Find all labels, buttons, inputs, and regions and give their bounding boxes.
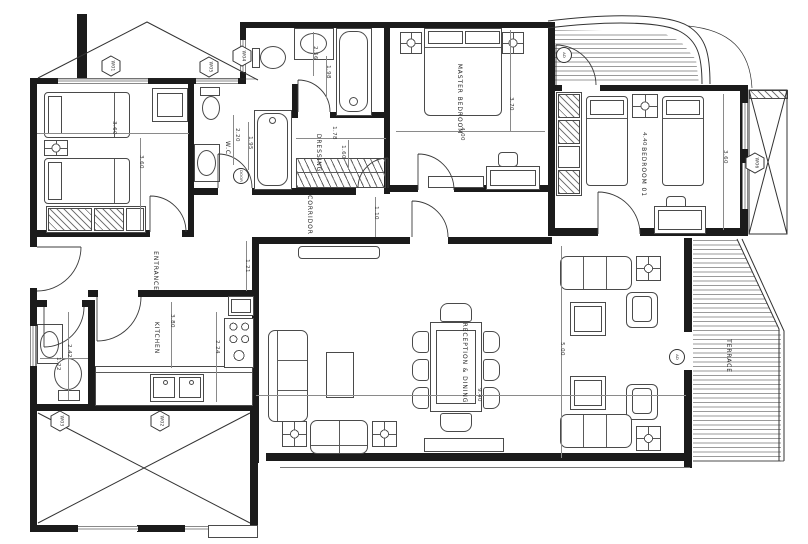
- door-arc: [418, 154, 454, 190]
- dimension-label: 2.20: [233, 128, 239, 142]
- dimension-label: 9.40: [475, 388, 481, 402]
- room-label: TERRACE: [725, 339, 731, 373]
- circle-tag: AD: [669, 349, 685, 365]
- door-arc: [44, 307, 84, 347]
- circle-tag: AD: [556, 47, 572, 63]
- circle-tag-label: AD: [562, 52, 566, 58]
- window-tag-hexagon: W05: [199, 56, 219, 78]
- room-label: DRESSING: [315, 134, 321, 172]
- dimension-label: 1.98: [324, 65, 330, 79]
- room-label: MASTER BEDROOM: [456, 64, 462, 135]
- circle-tag: DOOR: [233, 168, 249, 184]
- dimension-label: 1.78: [330, 126, 336, 140]
- dimension-label: 3.60: [110, 121, 116, 135]
- plan-linework: [0, 0, 808, 544]
- window-tag-hexagon: W06: [745, 152, 765, 174]
- window-tag-hexagon: W02: [150, 410, 170, 432]
- terrace-railing: [737, 239, 784, 461]
- window-tag-hexagon: W04: [232, 45, 252, 67]
- dimension-label: 2.24: [213, 340, 219, 354]
- door-arc: [97, 297, 141, 341]
- window-tag-label: W03: [58, 416, 63, 427]
- room-label: KITCHEN: [153, 322, 159, 354]
- dimension-label: 1.22: [54, 357, 60, 371]
- door-arc: [37, 247, 81, 291]
- window-tag-hexagon: W03: [50, 410, 70, 432]
- dimension-line: [216, 312, 217, 402]
- roof-sweep-curve: [688, 26, 752, 88]
- door-arc: [598, 192, 640, 234]
- dimension-line: [510, 30, 511, 131]
- dimension-label: 1.10: [372, 206, 378, 220]
- dimension-label: 1.21: [243, 259, 249, 273]
- room-label: BEDROOM 01: [640, 147, 646, 197]
- dimension-line: [348, 140, 349, 170]
- dimension-label: 1.60: [339, 145, 345, 159]
- dimension-label: 3.60: [721, 150, 727, 164]
- window-tag-label: W02: [158, 416, 163, 427]
- window-tag-label: W04: [240, 51, 245, 62]
- dimension-label: 3.70: [507, 97, 513, 111]
- door-arc: [358, 158, 388, 188]
- dimension-label: 2.56: [311, 46, 317, 60]
- window-tag-hexagon: W01: [101, 55, 121, 77]
- dimension-label: 1.95: [246, 136, 252, 150]
- circle-tag-label: AD: [675, 354, 679, 360]
- dimension-label: 4.00: [458, 127, 464, 141]
- floor-plan-canvas: ENTRANCEKITCHENCORRIDORW.CDRESSINGMASTER…: [0, 0, 808, 544]
- dimension-label: 3.60: [137, 155, 143, 169]
- window-tag-label: W01: [109, 61, 114, 72]
- door-arc: [412, 201, 448, 237]
- dimension-label: 2.42: [65, 344, 71, 358]
- room-label: CORRIDOR: [306, 195, 312, 235]
- window-tag-label: W06: [753, 158, 758, 169]
- door-arc: [150, 196, 186, 232]
- dimension-line: [140, 138, 141, 230]
- dimension-line: [171, 302, 172, 368]
- dimension-label: 5.00: [558, 342, 564, 356]
- canopy-outline: [38, 22, 258, 80]
- room-label: RECEPTION & DINING: [461, 323, 467, 404]
- dimension-line: [40, 358, 88, 359]
- room-label: ENTRANCE: [152, 251, 158, 291]
- dimension-label: 4.40: [640, 132, 646, 146]
- dimension-line: [256, 395, 686, 396]
- paving-edge-line: [280, 467, 690, 468]
- window-tag-label: W05: [207, 62, 212, 73]
- dimension-line: [296, 138, 386, 139]
- dimension-label: 3.80: [168, 314, 174, 328]
- room-label: W.C: [224, 141, 230, 155]
- circle-tag-label: DOOR: [239, 170, 243, 182]
- dimension-line: [396, 131, 545, 132]
